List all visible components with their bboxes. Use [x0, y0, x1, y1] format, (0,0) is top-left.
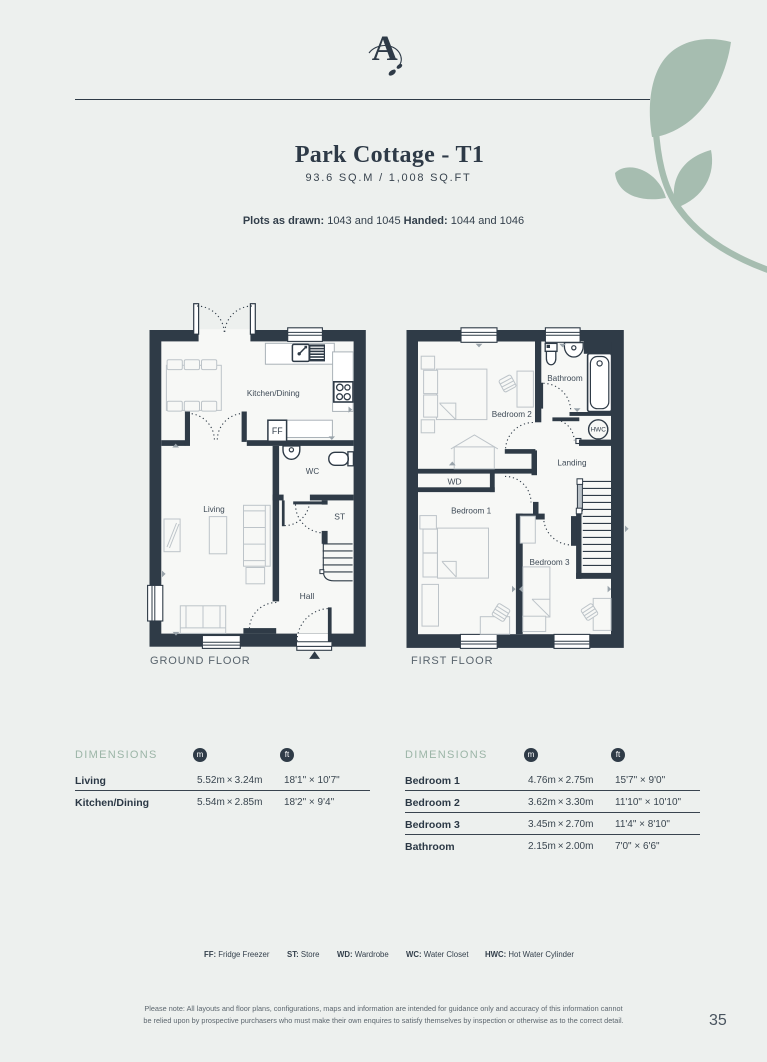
svg-text:Bedroom 3: Bedroom 3	[530, 558, 570, 567]
svg-text:WD: WD	[448, 476, 462, 486]
svg-text:Bedroom 1: Bedroom 1	[451, 507, 491, 516]
svg-text:WC: WC	[306, 467, 320, 476]
svg-text:Kitchen/Dining: Kitchen/Dining	[247, 389, 300, 398]
svg-text:Living: Living	[203, 505, 225, 514]
svg-text:Bedroom 2: Bedroom 2	[492, 410, 532, 419]
svg-text:HWC: HWC	[591, 427, 607, 434]
svg-text:FF: FF	[272, 426, 283, 436]
svg-text:Landing: Landing	[557, 459, 587, 468]
svg-text:Hall: Hall	[300, 591, 315, 601]
svg-text:Bathroom: Bathroom	[547, 374, 583, 383]
svg-text:ST: ST	[334, 512, 345, 522]
